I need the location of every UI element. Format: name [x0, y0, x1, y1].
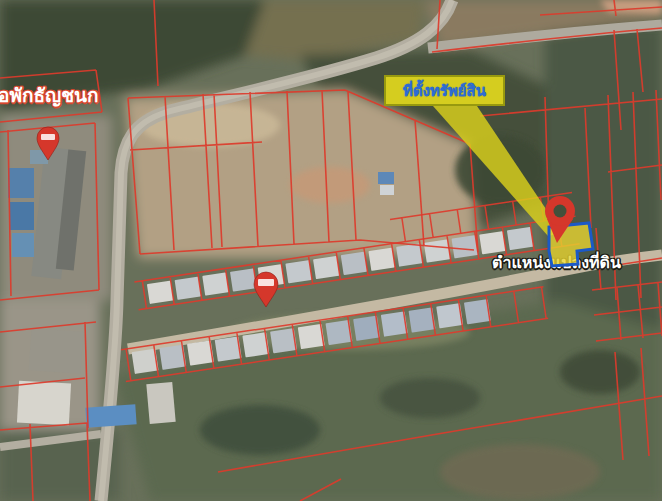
property-location-callout-text: ที่ตั้งทรัพย์สิน	[403, 79, 486, 103]
property-location-callout: ที่ตั้งทรัพย์สิน	[384, 75, 505, 106]
place-label: อพักธัญชนก	[0, 86, 99, 105]
satellite-map[interactable]: อพักธัญชนก ตำแหน่งแปลงที่ดิน ที่ตั้งทรัพ…	[0, 0, 662, 501]
parcel-position-label: ตำแหน่งแปลงที่ดิน	[492, 255, 621, 271]
map-imagery	[0, 0, 662, 501]
